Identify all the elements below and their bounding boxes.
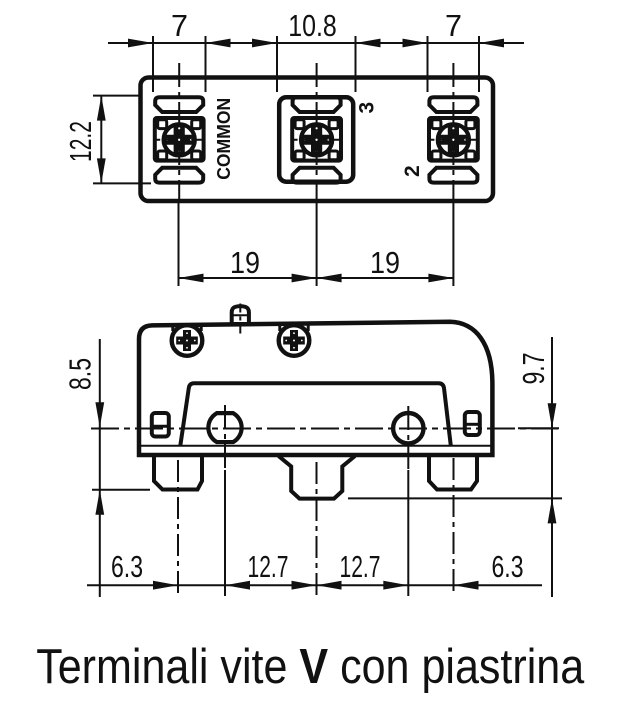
- svg-text:12.7: 12.7: [248, 550, 289, 584]
- svg-text:7: 7: [445, 9, 462, 43]
- svg-text:3: 3: [356, 102, 379, 114]
- svg-text:2: 2: [401, 165, 424, 177]
- svg-text:COMMON: COMMON: [213, 98, 234, 180]
- svg-text:12.7: 12.7: [340, 550, 381, 584]
- svg-text:19: 19: [370, 246, 400, 280]
- svg-text:12.2: 12.2: [64, 121, 98, 162]
- svg-text:6.3: 6.3: [492, 550, 524, 584]
- svg-text:9.7: 9.7: [517, 353, 551, 385]
- svg-text:Terminali vite V con piastrina: Terminali vite V con piastrina: [36, 640, 585, 694]
- svg-text:8.5: 8.5: [64, 358, 98, 390]
- svg-text:6.3: 6.3: [111, 550, 143, 584]
- svg-text:10.8: 10.8: [288, 9, 337, 43]
- svg-text:19: 19: [230, 246, 260, 280]
- svg-text:7: 7: [171, 9, 188, 43]
